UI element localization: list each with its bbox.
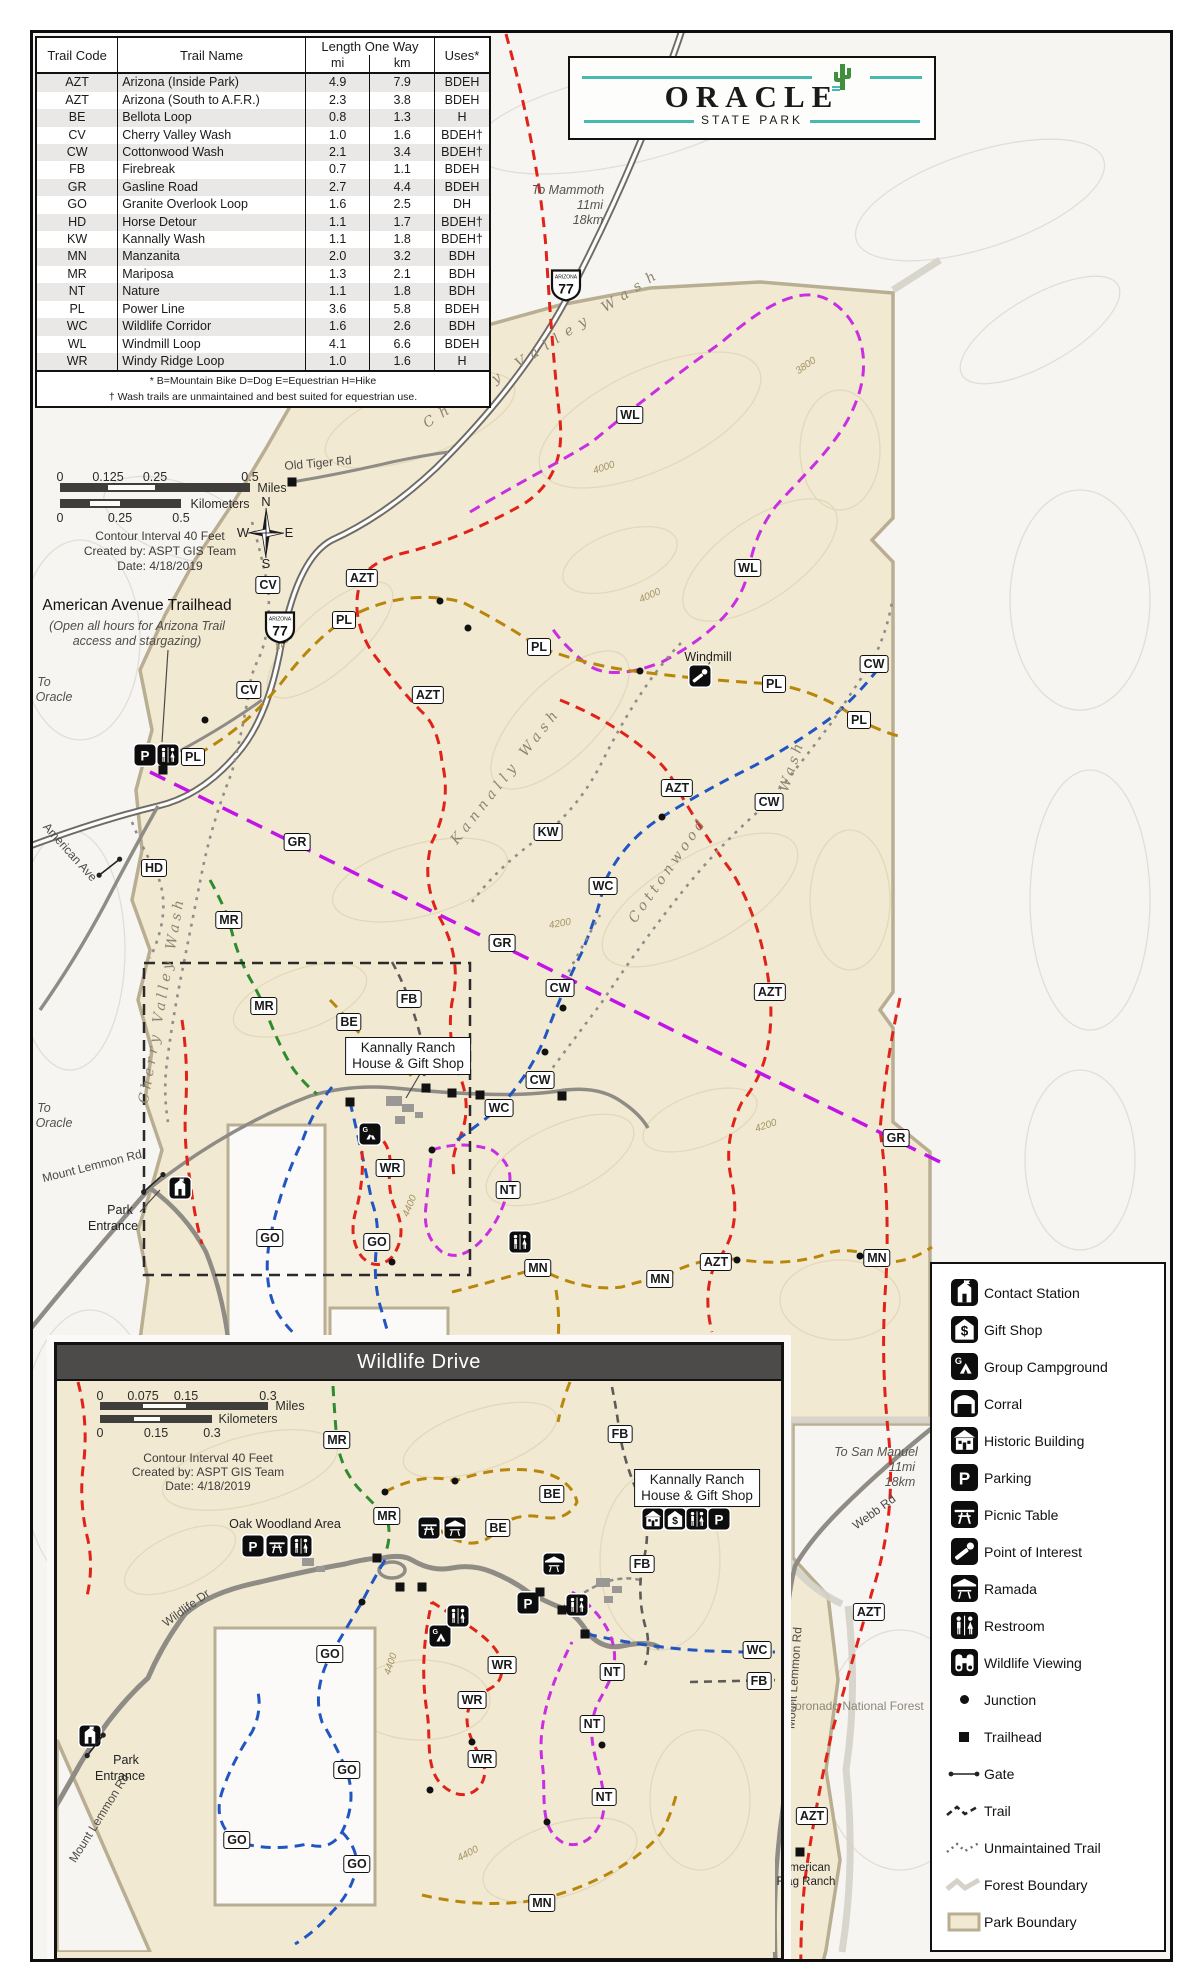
svg-text:E: E: [285, 525, 294, 540]
logo-line: [870, 76, 922, 79]
cell-km: 1.3: [370, 109, 435, 126]
trailhead-marker: [581, 1630, 590, 1639]
cell-code: GR: [37, 179, 118, 196]
scale-unit: Miles: [275, 1399, 304, 1413]
legend-label: Unmaintained Trail: [984, 1840, 1101, 1856]
kannally-ranch-label: Kannally RanchHouse & Gift Shop: [634, 1469, 760, 1507]
trail-badge-be: BE: [539, 1485, 564, 1503]
map-label: Date: 4/18/2019: [117, 559, 202, 573]
cell-name: Bellota Loop: [118, 109, 306, 126]
cell-code: KW: [37, 231, 118, 248]
cell-mi: 1.1: [305, 231, 370, 248]
svg-text:$: $: [960, 1324, 968, 1339]
cell-mi: 0.8: [305, 109, 370, 126]
junction-dot: [734, 1257, 741, 1264]
restroom-icon: [951, 1612, 978, 1639]
cell-code: NT: [37, 283, 118, 300]
legend-label: Contact Station: [984, 1285, 1080, 1301]
cell-mi: 4.1: [305, 336, 370, 353]
trail-badge-go: GO: [363, 1233, 390, 1251]
trail-badge-gr: GR: [883, 1129, 910, 1147]
cell-code: WC: [37, 318, 118, 335]
legend-item-contact-station: Contact Station: [944, 1274, 1164, 1311]
trail-row-azt-0: AZTArizona (Inside Park)4.97.9BDEH: [37, 73, 489, 91]
trail-badge-wc: WC: [485, 1099, 514, 1117]
trail-badge-cv: CV: [236, 681, 261, 699]
svg-text:P: P: [524, 1596, 533, 1611]
trail-row-mr-11: MRMariposa1.32.1BDH: [37, 266, 489, 283]
trail-badge-fb: FB: [630, 1555, 655, 1573]
trail-badge-nt: NT: [592, 1788, 617, 1806]
cell-code: CW: [37, 144, 118, 161]
svg-text:S: S: [262, 556, 271, 571]
legend-label: Gift Shop: [984, 1322, 1042, 1338]
cell-code: MR: [37, 266, 118, 283]
legend-item-historic-building: Historic Building: [944, 1422, 1164, 1459]
parking-icon: P: [951, 1464, 978, 1491]
trailhead-marker: [558, 1606, 567, 1615]
trail-badge-wc: WC: [743, 1641, 772, 1659]
trail-row-wr-16: WRWindy Ridge Loop1.01.6H: [37, 353, 489, 370]
cell-name: Mariposa: [118, 266, 306, 283]
cell-name: Granite Overlook Loop: [118, 196, 306, 213]
cell-code: MN: [37, 248, 118, 265]
poi-icon: [951, 1538, 978, 1565]
logo-line: [584, 120, 694, 123]
trail-badge-cw: CW: [526, 1071, 555, 1089]
restroom-icon: [448, 1606, 469, 1627]
cell-mi: 2.0: [305, 248, 370, 265]
junction-dot: [429, 1147, 436, 1154]
map-label: Flag Ranch: [777, 1876, 836, 1888]
legend-item-ramada: Ramada: [944, 1570, 1164, 1607]
trail-row-azt-1: AZTArizona (South to A.F.R.)2.33.8BDEH: [37, 92, 489, 109]
historic-icon: [951, 1427, 978, 1454]
legend-label: Parking: [984, 1470, 1031, 1486]
trail-badge-cw: CW: [546, 979, 575, 997]
legend-item-gate: Gate: [944, 1755, 1164, 1792]
cell-uses: DH: [434, 196, 489, 213]
cell-name: Firebreak: [118, 161, 306, 178]
campground-icon: G: [951, 1353, 978, 1380]
map-label: Oracle: [36, 690, 73, 704]
cell-km: 2.1: [370, 266, 435, 283]
trail-icon: [945, 1802, 983, 1820]
junction-dot: [544, 1819, 551, 1826]
scale-bar: [60, 483, 250, 492]
map-label: Park: [107, 1203, 133, 1217]
trail-badge-be: BE: [336, 1013, 361, 1031]
parking-icon: P: [709, 1509, 730, 1530]
scale-tick: 0.3: [259, 1389, 276, 1403]
trail-badge-mr: MR: [250, 997, 277, 1015]
junction-dot: [637, 668, 644, 675]
map-label: Created by: ASPT GIS Team: [132, 1465, 284, 1479]
trail-badge-wl: WL: [616, 406, 643, 424]
svg-text:G: G: [954, 1356, 961, 1366]
legend-label: Point of Interest: [984, 1544, 1082, 1560]
trail-badge-azt: AZT: [796, 1807, 828, 1825]
legend-label: Wildlife Viewing: [984, 1655, 1082, 1671]
scale-bar: [100, 1402, 268, 1410]
trailhead-marker: [418, 1583, 427, 1592]
legend-item-forest-boundary: Forest Boundary: [944, 1866, 1164, 1903]
junction-dot: [369, 1129, 376, 1136]
legend-item-point-of-interest: Point of Interest: [944, 1533, 1164, 1570]
trail-row-mn-10: MNManzanita2.03.2BDH: [37, 248, 489, 265]
svg-text:W: W: [237, 525, 250, 540]
restroom-icon: [510, 1232, 531, 1253]
cell-mi: 1.3: [305, 266, 370, 283]
trailhead-marker: [159, 766, 168, 775]
map-label: (Open all hours for Arizona Trail: [49, 619, 225, 633]
junction-icon: [960, 1695, 969, 1704]
junction-dot: [560, 1005, 567, 1012]
cell-mi: 1.0: [305, 127, 370, 144]
trail-badge-azt: AZT: [853, 1603, 885, 1621]
map-label: Contour Interval 40 Feet: [143, 1451, 272, 1465]
cell-code: WR: [37, 353, 118, 370]
junction-dot: [452, 1478, 459, 1485]
cell-mi: 2.7: [305, 179, 370, 196]
compass-n: N: [261, 494, 270, 509]
trail-row-nt-12: NTNature1.11.8BDH: [37, 283, 489, 300]
trail-badge-wr: WR: [488, 1656, 517, 1674]
cell-name: Windmill Loop: [118, 336, 306, 353]
cell-mi: 1.6: [305, 318, 370, 335]
svg-text:♞: ♞: [959, 1404, 968, 1415]
historic-icon: [643, 1509, 664, 1530]
junction-dot: [469, 1739, 476, 1746]
junction-dot: [599, 1742, 606, 1749]
trail-badge-mn: MN: [528, 1894, 555, 1912]
scale-tick: 0.5: [241, 470, 258, 484]
table-footnote-2: † Wash trails are unmaintained and best …: [37, 390, 489, 406]
trail-badge-wr: WR: [468, 1750, 497, 1768]
map-label: Created by: ASPT GIS Team: [84, 544, 236, 558]
legend-label: Picnic Table: [984, 1507, 1058, 1523]
scale-unit: Kilometers: [218, 1412, 277, 1426]
logo-title: ORACLE: [570, 84, 934, 110]
trailhead-marker: [558, 1092, 567, 1101]
scale-tick: 0.15: [174, 1389, 198, 1403]
legend-label: Trail: [984, 1803, 1011, 1819]
map-label: Oak Woodland Area: [229, 1517, 341, 1531]
trail-badge-wc: WC: [589, 877, 618, 895]
trail-badge-nt: NT: [600, 1663, 625, 1681]
picnic-icon: [267, 1536, 288, 1557]
trail-badge-cv: CV: [255, 576, 280, 594]
cell-code: PL: [37, 301, 118, 318]
cell-mi: 2.1: [305, 144, 370, 161]
map-label: 18km: [885, 1475, 916, 1489]
cell-code: FB: [37, 161, 118, 178]
trail-table: Trail Code Trail Name Length One Way Use…: [35, 36, 491, 408]
legend-item-parking: PParking: [944, 1459, 1164, 1496]
trail-badge-hd: HD: [141, 859, 167, 877]
trail-badge-gr: GR: [489, 934, 516, 952]
trail-badge-wl: WL: [734, 559, 761, 577]
map-label: 11mi: [577, 198, 603, 212]
cell-km: 2.5: [370, 196, 435, 213]
svg-text:P: P: [141, 748, 150, 763]
cell-name: Arizona (South to A.F.R.): [118, 92, 306, 109]
trail-badge-azt: AZT: [412, 686, 444, 704]
trailhead-marker: [422, 1084, 431, 1093]
trail-badge-azt: AZT: [346, 569, 378, 587]
trail-badge-azt: AZT: [754, 983, 786, 1001]
restroom-icon: [158, 745, 179, 766]
cell-km: 1.6: [370, 353, 435, 370]
cell-name: Windy Ridge Loop: [118, 353, 306, 370]
trail-row-cw-4: CWCottonwood Wash2.13.4BDEH†: [37, 144, 489, 161]
trail-badge-mr: MR: [323, 1431, 350, 1449]
unmaintained-icon: [945, 1839, 983, 1857]
scale-tick: 0.3: [203, 1426, 220, 1440]
cell-km: 7.9: [370, 73, 435, 91]
trail-badge-go: GO: [333, 1761, 360, 1779]
junction-dot: [202, 717, 209, 724]
cell-km: 6.6: [370, 336, 435, 353]
scale-tick: 0.25: [143, 470, 167, 484]
cell-mi: 3.6: [305, 301, 370, 318]
legend-label: Ramada: [984, 1581, 1037, 1597]
cell-mi: 1.1: [305, 283, 370, 300]
map-label: 18km: [573, 213, 604, 227]
cell-uses: BDH: [434, 318, 489, 335]
legend-item-unmaintained-trail: Unmaintained Trail: [944, 1829, 1164, 1866]
cell-km: 3.4: [370, 144, 435, 161]
cell-code: CV: [37, 127, 118, 144]
restroom-icon: [291, 1536, 312, 1557]
picnic-icon: [951, 1501, 978, 1528]
scale-tick: 0.5: [172, 511, 189, 525]
svg-text:P: P: [249, 1539, 258, 1554]
trail-badge-mr: MR: [215, 911, 242, 929]
svg-text:$: $: [672, 1515, 678, 1527]
trail-badge-azt: AZT: [700, 1253, 732, 1271]
cell-uses: BDEH†: [434, 144, 489, 161]
trailhead-marker: [396, 1583, 405, 1592]
scale-tick: 0: [97, 1389, 104, 1403]
svg-text:77: 77: [558, 281, 574, 297]
svg-text:77: 77: [272, 623, 288, 639]
park-logo: ORACLE STATE PARK: [568, 56, 936, 140]
col-mi: mi: [305, 55, 370, 73]
map-legend: Contact Station$Gift ShopGGroup Campgrou…: [930, 1262, 1166, 1952]
cell-uses: BDEH: [434, 301, 489, 318]
table-footnote-1: * B=Mountain Bike D=Dog E=Equestrian H=H…: [37, 370, 489, 390]
trail-badge-mn: MN: [863, 1249, 890, 1267]
trailhead-marker: [536, 1588, 545, 1597]
logo-subtitle: STATE PARK: [701, 113, 803, 127]
cell-km: 2.6: [370, 318, 435, 335]
junction-dot: [359, 1599, 366, 1606]
ramada-icon: [445, 1518, 466, 1539]
junction-dot: [389, 1259, 396, 1266]
trail-row-be-2: BEBellota Loop0.81.3H: [37, 109, 489, 126]
scale-tick: 0: [57, 470, 64, 484]
legend-item-restroom: Restroom: [944, 1607, 1164, 1644]
cell-km: 1.1: [370, 161, 435, 178]
scale-tick: 0.25: [108, 511, 132, 525]
legend-item-trail: Trail: [944, 1792, 1164, 1829]
legend-item-group-campground: GGroup Campground: [944, 1348, 1164, 1385]
legend-item-wildlife-viewing: Wildlife Viewing: [944, 1644, 1164, 1681]
trail-badge-fb: FB: [747, 1672, 772, 1690]
cell-uses: BDEH: [434, 73, 489, 91]
scale-bar: [60, 499, 181, 508]
corral-icon: ♞: [951, 1390, 978, 1417]
trail-badge-go: GO: [316, 1645, 343, 1663]
logo-line: [582, 76, 812, 79]
giftshop-icon: $: [951, 1316, 978, 1343]
cell-uses: BDH: [434, 248, 489, 265]
map-label: Oracle: [36, 1116, 73, 1130]
cell-uses: BDEH: [434, 92, 489, 109]
trailhead-marker: [373, 1554, 382, 1563]
cell-name: Kannally Wash: [118, 231, 306, 248]
trail-badge-fb: FB: [608, 1425, 633, 1443]
trail-row-pl-13: PLPower Line3.65.8BDEH: [37, 301, 489, 318]
scale-tick: 0.125: [92, 470, 123, 484]
trail-row-hd-8: HDHorse Detour1.11.7BDEH†: [37, 214, 489, 231]
cell-km: 1.6: [370, 127, 435, 144]
legend-label: Trailhead: [984, 1729, 1042, 1745]
cell-uses: BDH: [434, 283, 489, 300]
ramada-icon: [951, 1575, 978, 1602]
scale-bar: [100, 1415, 212, 1423]
trail-badge-cw: CW: [860, 655, 889, 673]
cell-name: Manzanita: [118, 248, 306, 265]
cell-km: 1.8: [370, 283, 435, 300]
parking-icon: P: [243, 1536, 264, 1557]
contact-icon: [951, 1279, 978, 1306]
junction-dot: [427, 1787, 434, 1794]
col-length: Length One Way: [305, 38, 434, 55]
cell-code: BE: [37, 109, 118, 126]
trail-badge-nt: NT: [496, 1181, 521, 1199]
legend-label: Historic Building: [984, 1433, 1084, 1449]
trail-badge-wr: WR: [458, 1691, 487, 1709]
trail-badge-pl: PL: [181, 748, 205, 766]
map-label: Entrance: [88, 1219, 138, 1233]
parking-icon: P: [135, 745, 156, 766]
map-label: 11mi: [889, 1460, 915, 1474]
cell-km: 4.4: [370, 179, 435, 196]
logo-line: [810, 120, 920, 123]
cell-name: Arizona (Inside Park): [118, 73, 306, 91]
cell-uses: H: [434, 109, 489, 126]
legend-label: Restroom: [984, 1618, 1045, 1634]
junction-dot: [465, 625, 472, 632]
cell-name: Wildlife Corridor: [118, 318, 306, 335]
map-label: To: [37, 1101, 50, 1115]
gate-icon: [946, 1769, 982, 1779]
trail-badge-kw: KW: [534, 823, 563, 841]
restroom-icon: [567, 1595, 588, 1616]
trailhead-marker: [796, 1848, 805, 1857]
trailhead-marker: [346, 1098, 355, 1107]
poi-icon: [690, 666, 711, 687]
map-label: access and stargazing): [73, 634, 202, 648]
legend-label: Forest Boundary: [984, 1877, 1088, 1893]
cell-km: 3.2: [370, 248, 435, 265]
scale-tick: 0: [97, 1426, 104, 1440]
cell-name: Power Line: [118, 301, 306, 318]
map-label: To Mammoth: [532, 183, 604, 197]
map-label: Date: 4/18/2019: [165, 1479, 250, 1493]
trailhead-icon: [959, 1732, 969, 1742]
map-label: Contour Interval 40 Feet: [95, 529, 224, 543]
map-label: Coronado National Forest: [786, 1699, 923, 1713]
map-label: American: [782, 1862, 831, 1874]
legend-label: Junction: [984, 1692, 1036, 1708]
contact-icon: [170, 1178, 191, 1199]
trail-badge-mn: MN: [646, 1270, 673, 1288]
cell-uses: BDEH: [434, 179, 489, 196]
junction-dot: [542, 1049, 549, 1056]
legend-label: Park Boundary: [984, 1914, 1077, 1930]
ramada-icon: [544, 1554, 565, 1575]
trailhead-marker: [448, 1089, 457, 1098]
trail-badge-gr: GR: [284, 833, 311, 851]
cell-name: Cherry Valley Wash: [118, 127, 306, 144]
cell-uses: BDH: [434, 266, 489, 283]
legend-item-park-boundary: Park Boundary: [944, 1903, 1164, 1940]
trail-badge-fb: FB: [397, 990, 422, 1008]
highway-77-shield: ARIZONA77: [549, 268, 583, 309]
trail-badge-be: BE: [485, 1519, 510, 1537]
cell-code: AZT: [37, 92, 118, 109]
trail-row-wl-15: WLWindmill Loop4.16.6BDEH: [37, 336, 489, 353]
cell-name: Gasline Road: [118, 179, 306, 196]
parkfill-icon: [947, 1912, 981, 1932]
cell-uses: BDEH†: [434, 231, 489, 248]
legend-item-junction: Junction: [944, 1681, 1164, 1718]
trailhead-marker: [476, 1091, 485, 1100]
trail-row-gr-6: GRGasline Road2.74.4BDEH: [37, 179, 489, 196]
cell-code: WL: [37, 336, 118, 353]
legend-item-gift-shop: $Gift Shop: [944, 1311, 1164, 1348]
map-label: Windmill: [684, 650, 731, 664]
trail-row-cv-3: CVCherry Valley Wash1.01.6BDEH†: [37, 127, 489, 144]
junction-dot: [382, 1489, 389, 1496]
trail-row-wc-14: WCWildlife Corridor1.62.6BDH: [37, 318, 489, 335]
map-label: American Avenue Trailhead: [42, 597, 231, 615]
trail-row-kw-9: KWKannally Wash1.11.8BDEH†: [37, 231, 489, 248]
col-uses: Uses*: [434, 38, 489, 73]
cell-mi: 4.9: [305, 73, 370, 91]
trail-badge-go: GO: [223, 1831, 250, 1849]
picnic-icon: [419, 1518, 440, 1539]
legend-label: Group Campground: [984, 1359, 1108, 1375]
legend-item-corral: ♞Corral: [944, 1385, 1164, 1422]
trail-badge-pl: PL: [762, 675, 786, 693]
svg-text:P: P: [958, 1468, 969, 1488]
trail-badge-mr: MR: [373, 1507, 400, 1525]
col-km: km: [370, 55, 435, 73]
forestline-icon: [945, 1876, 983, 1894]
cell-code: GO: [37, 196, 118, 213]
scale-tick: 0: [57, 511, 64, 525]
trail-badge-pl: PL: [527, 638, 551, 656]
wildlife-icon: [951, 1649, 978, 1676]
map-label: Park: [113, 1753, 139, 1767]
legend-label: Corral: [984, 1396, 1022, 1412]
kannally-ranch-label: Kannally RanchHouse & Gift Shop: [345, 1037, 471, 1075]
map-label: Entrance: [95, 1769, 145, 1783]
